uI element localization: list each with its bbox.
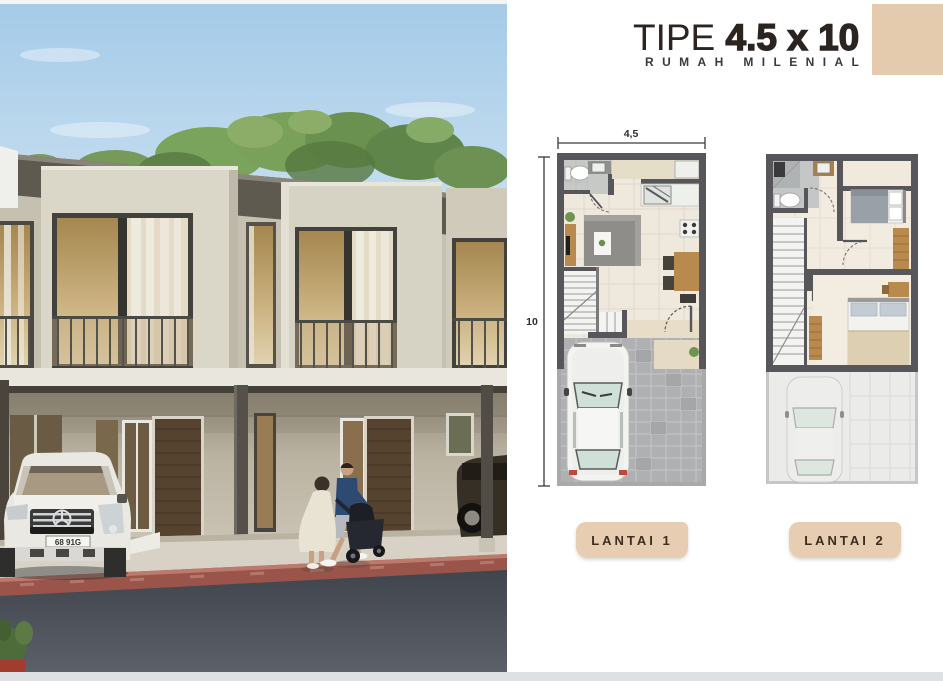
svg-text:68 91G: 68 91G [55,538,81,547]
svg-text:10: 10 [526,316,538,328]
svg-text:4,5: 4,5 [624,128,639,140]
